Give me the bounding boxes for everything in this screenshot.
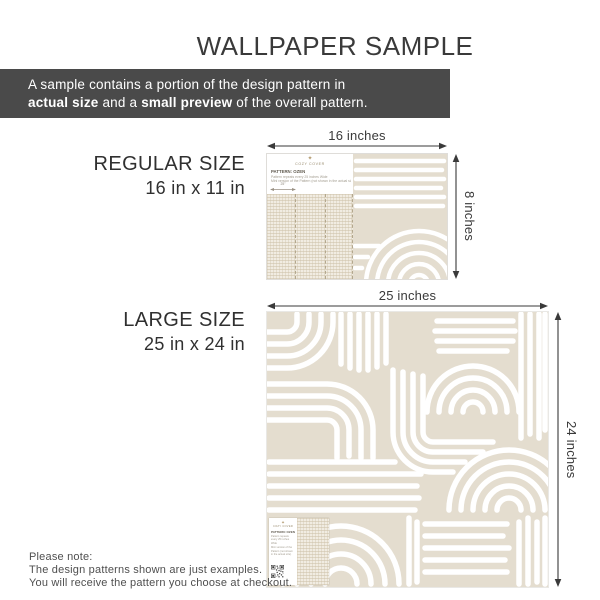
- regular-size-heading: REGULAR SIZE: [60, 152, 245, 177]
- regular-size-dimensions: 16 in x 11 in: [60, 177, 245, 200]
- mini-pattern-preview: [267, 194, 353, 279]
- footer-note: Please note: The design patterns shown a…: [29, 551, 292, 590]
- large-size-label: LARGE SIZE 25 in x 24 in: [60, 308, 245, 356]
- footer-note-line-1: Please note:: [29, 551, 292, 564]
- brand-name: COZY COVER: [267, 162, 353, 167]
- footer-note-line-2: The design patterns shown are just examp…: [29, 564, 292, 577]
- brand-logo: ✦ COZY COVER: [267, 154, 353, 167]
- regular-height-label: 8 inches: [461, 154, 477, 279]
- cut-line: [295, 194, 296, 279]
- repeat-width-label: 25": [270, 182, 296, 186]
- info-banner: A sample contains a portion of the desig…: [0, 69, 450, 118]
- actual-size-pattern-regular: [353, 154, 447, 279]
- page-title: WALLPAPER SAMPLE: [70, 31, 600, 62]
- wallpaper-sample-infographic: WALLPAPER SAMPLE A sample contains a por…: [0, 0, 600, 600]
- footer-note-line-3: You will receive the pattern you choose …: [29, 577, 292, 590]
- large-sample-pattern: ✦ COZY COVER PATTERN: OZEN Pattern repea…: [267, 312, 548, 587]
- pattern-title: PATTERN: OZEN: [271, 169, 353, 174]
- large-width-arrow: [267, 300, 548, 312]
- regular-width-arrow: [267, 140, 447, 152]
- mini-pattern-preview: [297, 518, 329, 585]
- cut-line: [325, 194, 326, 279]
- large-size-heading: LARGE SIZE: [60, 308, 245, 333]
- regular-sample-card: ✦ COZY COVER PATTERN: OZEN Pattern repea…: [267, 154, 447, 279]
- repeat-width-arrow: [270, 187, 296, 192]
- pattern-detail-1: Pattern repeats every 25 inches Wide: [271, 535, 295, 545]
- large-height-label: 24 inches: [563, 312, 579, 587]
- regular-size-label: REGULAR SIZE 16 in x 11 in: [60, 152, 245, 200]
- brand-name: COZY COVER: [269, 525, 297, 529]
- large-size-dimensions: 25 in x 24 in: [60, 333, 245, 356]
- banner-line-1: A sample contains a portion of the desig…: [28, 76, 440, 94]
- brand-logo: ✦ COZY COVER: [269, 518, 297, 529]
- pattern-title: PATTERN: OZEN: [271, 530, 297, 534]
- sample-card-label: ✦ COZY COVER PATTERN: OZEN Pattern repea…: [267, 154, 353, 194]
- banner-line-2: actual size and a small preview of the o…: [28, 94, 440, 112]
